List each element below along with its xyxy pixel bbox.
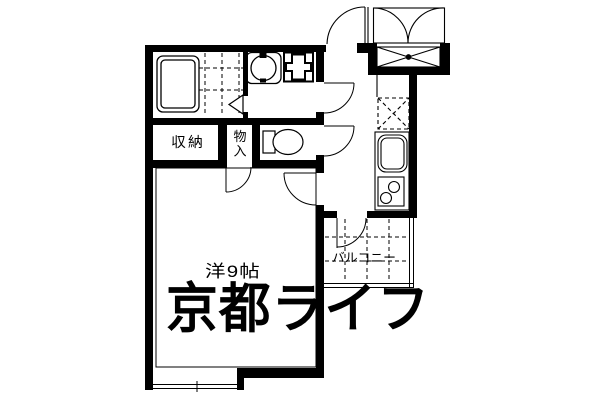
wall-closet-wc-divider [252,125,260,160]
wall-left [145,45,153,390]
wall-storage-bottom-right [252,160,324,168]
wall-corridor-left-b [316,112,324,125]
washbasin-faucet [260,52,267,58]
wall-storage-bottom-left [145,160,227,168]
wall-storage-closet-divider [218,125,227,160]
wall-corridor-left-c [316,155,324,173]
wall-room-bottom [237,368,324,378]
toilet-bowl [273,130,303,155]
main-room-label: 洋9帖 [205,262,261,281]
floor-plan: 京都ライフ [0,0,600,400]
closet-label: 物入 [233,129,246,159]
wall-baywindow-step [237,378,244,390]
wall-top [145,45,326,52]
wall-balcony-top-right [367,211,417,218]
wall-bath-storage-divider [145,118,324,125]
wall-balcony-top-left [316,211,337,218]
wall-bath-divider-stub [243,112,248,118]
balcony-label: バルコニー [332,251,396,265]
floor-plan-page: 京都ライフ [0,0,600,400]
storage-label: 収納 [171,134,205,150]
wall-room-right [316,205,324,378]
washbasin-drain [260,79,266,83]
meterbox-center-dot [406,55,411,60]
wall-entrance-post [357,43,369,53]
toilet-room [263,130,303,155]
wall-kitchen-right [409,70,417,218]
wall-corridor-left-a [316,45,324,82]
